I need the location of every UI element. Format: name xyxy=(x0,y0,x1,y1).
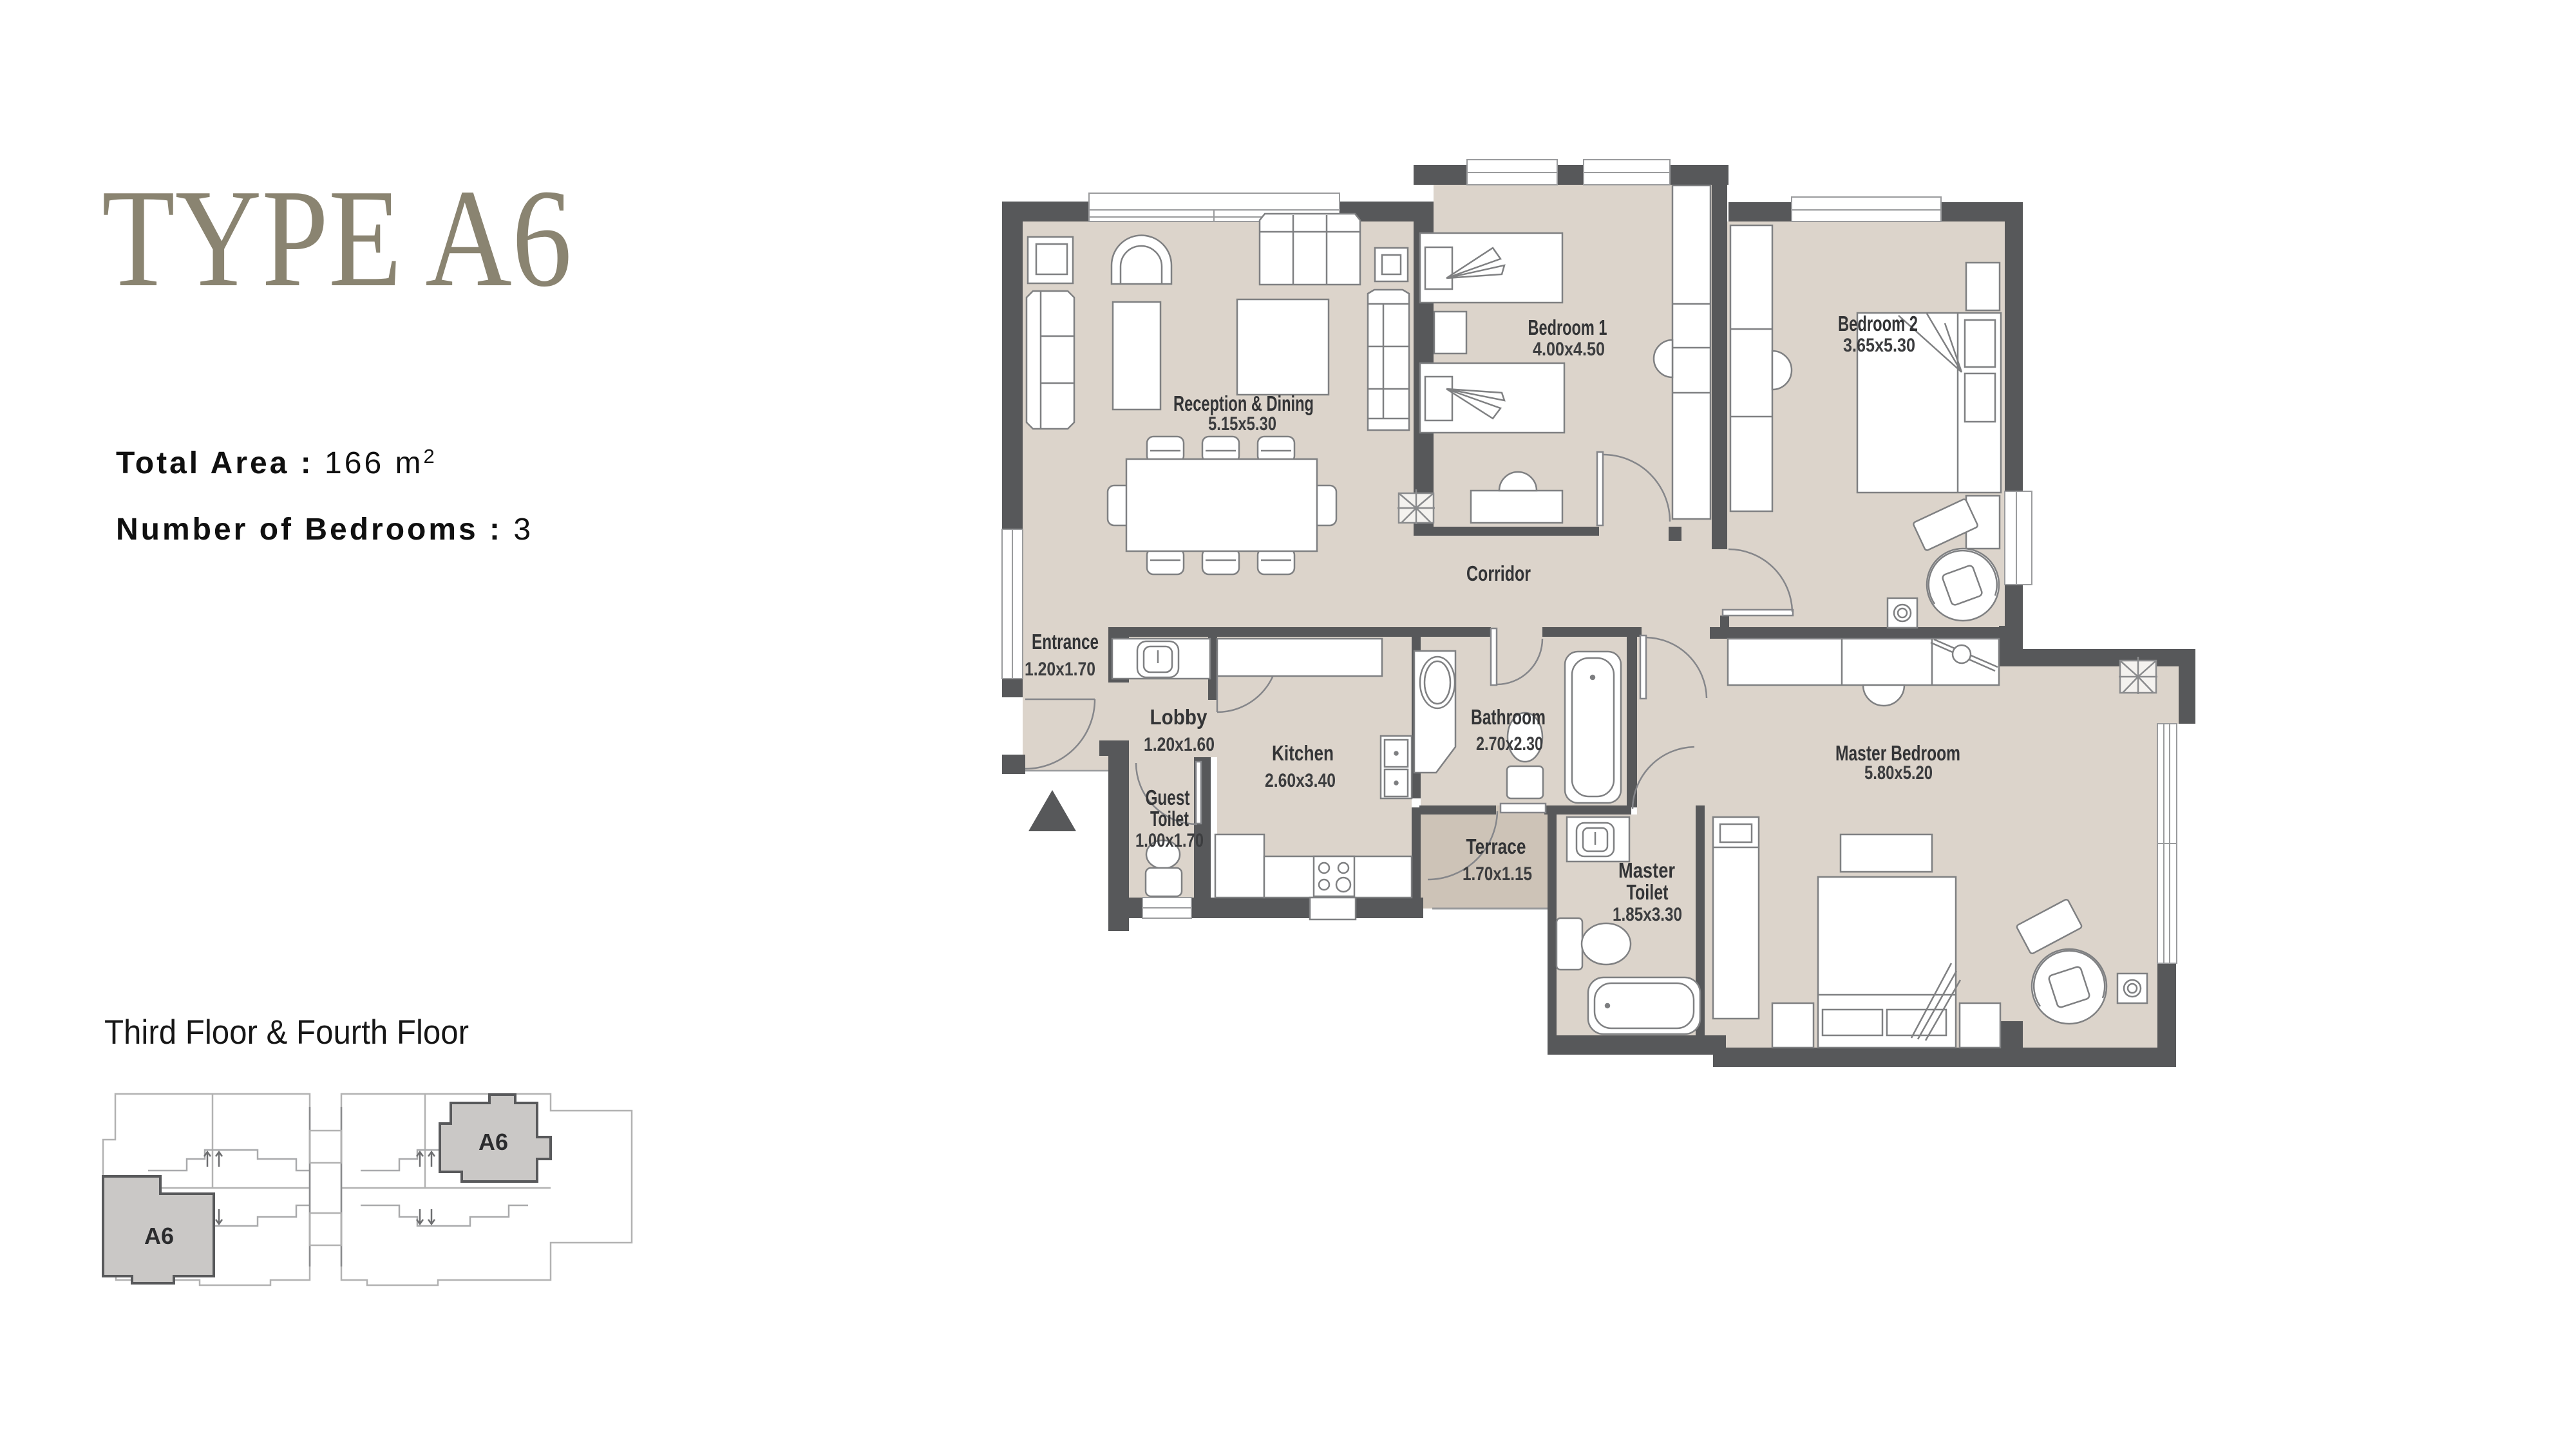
svg-text:Third Floor & Fourth Floor: Third Floor & Fourth Floor xyxy=(104,1013,469,1051)
svg-text:Entrance: Entrance xyxy=(1032,630,1099,654)
svg-text:1.20x1.60: 1.20x1.60 xyxy=(1144,734,1215,755)
svg-text:TYPE A6: TYPE A6 xyxy=(102,161,572,316)
svg-text:Master Bedroom: Master Bedroom xyxy=(1835,741,1960,765)
svg-text:Master: Master xyxy=(1618,858,1675,882)
svg-text:3.65x5.30: 3.65x5.30 xyxy=(1843,335,1915,356)
svg-text:Corridor: Corridor xyxy=(1466,561,1531,585)
svg-text:Toilet: Toilet xyxy=(1627,880,1669,904)
svg-text:Guest: Guest xyxy=(1146,786,1190,809)
svg-text:Lobby: Lobby xyxy=(1150,705,1208,729)
svg-text:A6: A6 xyxy=(144,1223,174,1249)
svg-text:Terrace: Terrace xyxy=(1466,834,1526,858)
svg-text:Bedroom 1: Bedroom 1 xyxy=(1528,315,1607,339)
svg-text:Toilet: Toilet xyxy=(1150,807,1189,831)
svg-text:A6: A6 xyxy=(478,1129,508,1155)
svg-text:Kitchen: Kitchen xyxy=(1272,741,1334,765)
svg-text:Bathroom: Bathroom xyxy=(1471,705,1546,729)
svg-text:1.85x3.30: 1.85x3.30 xyxy=(1613,904,1682,925)
svg-text:Total Area : 166 m2: Total Area : 166 m2 xyxy=(116,445,437,480)
svg-text:1.20x1.70: 1.20x1.70 xyxy=(1025,659,1095,680)
svg-text:2.60x3.40: 2.60x3.40 xyxy=(1265,770,1336,791)
svg-text:5.15x5.30: 5.15x5.30 xyxy=(1208,413,1276,435)
svg-text:Bedroom 2: Bedroom 2 xyxy=(1838,312,1918,335)
svg-text:1.70x1.15: 1.70x1.15 xyxy=(1463,863,1532,885)
svg-text:Reception & Dining: Reception & Dining xyxy=(1173,391,1314,415)
svg-text:4.00x4.50: 4.00x4.50 xyxy=(1533,339,1605,360)
svg-text:Number of Bedrooms : 3: Number of Bedrooms : 3 xyxy=(116,513,533,547)
svg-text:2.70x2.30: 2.70x2.30 xyxy=(1476,733,1543,755)
svg-text:5.80x5.20: 5.80x5.20 xyxy=(1864,762,1933,784)
svg-text:1.00x1.70: 1.00x1.70 xyxy=(1135,830,1204,851)
